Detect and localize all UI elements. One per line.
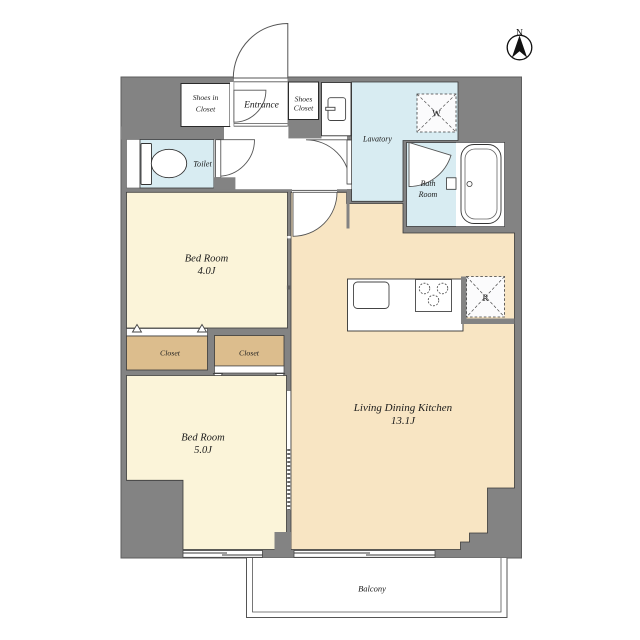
svg-text:N: N (516, 28, 523, 39)
svg-text:Lavatory: Lavatory (362, 135, 392, 144)
svg-text:Closet: Closet (294, 104, 314, 113)
svg-text:Bath: Bath (420, 179, 435, 188)
svg-text:Closet: Closet (196, 105, 216, 114)
svg-text:Living Dining Kitchen: Living Dining Kitchen (353, 402, 453, 414)
svg-text:Bed Room: Bed Room (181, 433, 225, 444)
svg-text:Shoes in: Shoes in (193, 93, 219, 102)
svg-text:Balcony: Balcony (358, 584, 386, 594)
svg-text:Bed Room: Bed Room (185, 254, 229, 265)
svg-text:4.0J: 4.0J (198, 266, 217, 277)
svg-text:Closet: Closet (160, 349, 181, 358)
svg-text:Entrance: Entrance (243, 101, 279, 111)
svg-text:Room: Room (418, 190, 438, 199)
svg-text:5.0J: 5.0J (194, 445, 213, 456)
svg-text:W: W (432, 109, 441, 119)
svg-text:R: R (482, 293, 488, 303)
svg-text:13.1J: 13.1J (391, 415, 416, 427)
svg-text:Toilet: Toilet (193, 159, 212, 168)
svg-text:Closet: Closet (239, 349, 260, 358)
svg-text:Shoes: Shoes (295, 95, 313, 104)
